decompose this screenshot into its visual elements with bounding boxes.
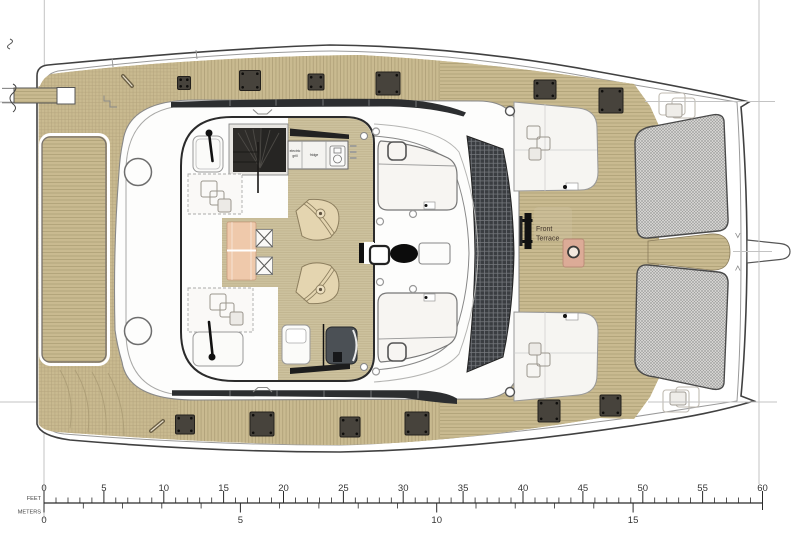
- svg-text:30: 30: [398, 483, 409, 494]
- svg-text:60: 60: [757, 483, 768, 494]
- svg-text:fridge: fridge: [310, 153, 319, 157]
- svg-text:FEET: FEET: [27, 496, 42, 502]
- svg-text:grill: grill: [292, 154, 298, 158]
- svg-text:Terrace: Terrace: [536, 236, 559, 243]
- svg-text:0: 0: [41, 483, 46, 494]
- svg-text:25: 25: [338, 483, 349, 494]
- svg-text:Front: Front: [536, 226, 552, 233]
- svg-text:10: 10: [159, 483, 170, 494]
- svg-text:10: 10: [431, 515, 442, 526]
- svg-text:electric: electric: [290, 149, 301, 153]
- svg-text:20: 20: [278, 483, 289, 494]
- svg-text:0: 0: [41, 515, 46, 526]
- svg-text:METERS: METERS: [18, 510, 42, 516]
- svg-text:50: 50: [638, 483, 649, 494]
- svg-text:40: 40: [518, 483, 529, 494]
- svg-text:45: 45: [578, 483, 589, 494]
- svg-text:5: 5: [101, 483, 106, 494]
- svg-text:55: 55: [697, 483, 708, 494]
- svg-text:15: 15: [628, 515, 639, 526]
- svg-text:5: 5: [238, 515, 243, 526]
- svg-text:15: 15: [218, 483, 229, 494]
- svg-text:35: 35: [458, 483, 469, 494]
